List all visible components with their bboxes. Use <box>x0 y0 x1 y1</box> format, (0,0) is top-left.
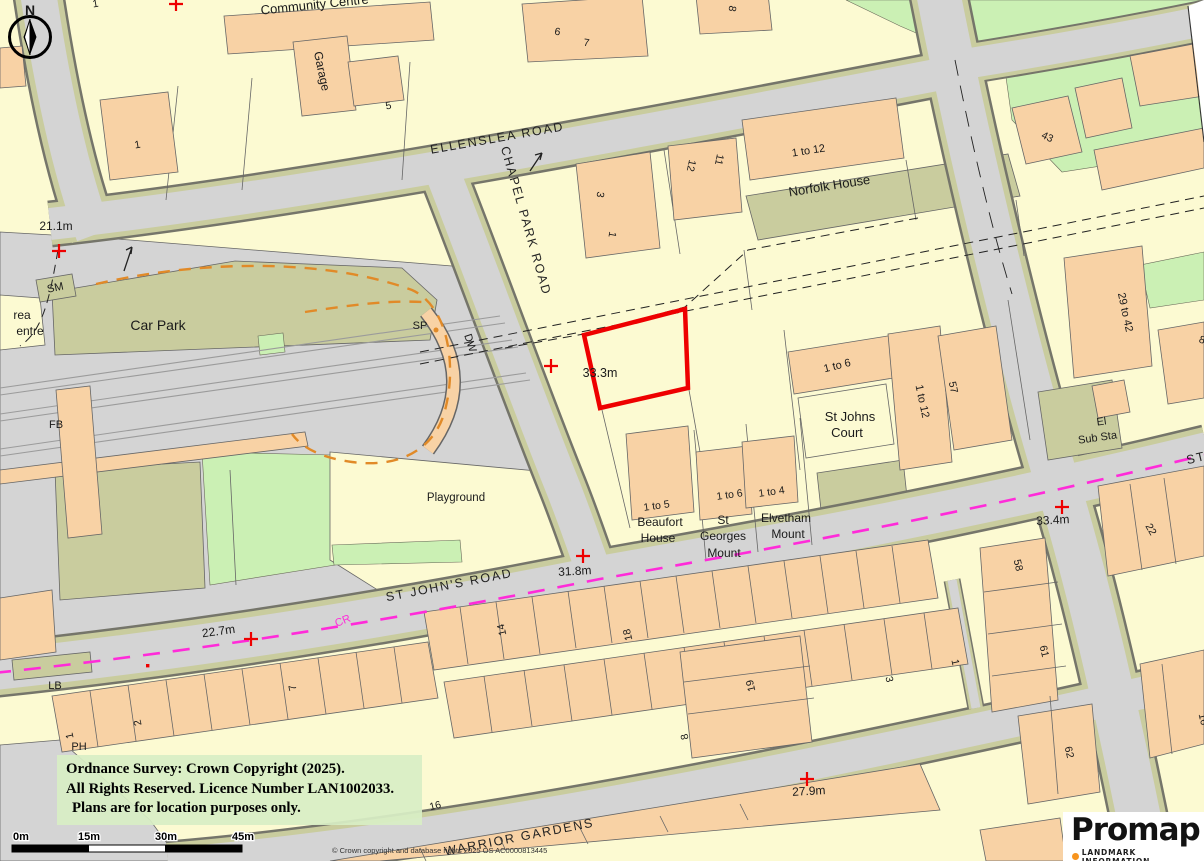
label-playground: Playground <box>427 492 485 504</box>
label-elvetham-mount: Mount <box>771 527 805 541</box>
promap-dot-icon <box>1072 853 1079 860</box>
promap-tagline: LANDMARK INFORMATION <box>1082 848 1204 861</box>
spot-height: 31.8m <box>558 563 592 579</box>
label-elvetham-mount: Elvetham <box>761 511 811 525</box>
label-beaufort-house: House <box>641 531 676 545</box>
label-beaufort-house: Beaufort <box>637 515 683 529</box>
label-st-johns-court: Court <box>831 425 863 440</box>
promap-logo: Promap LANDMARK INFORMATION <box>1063 812 1204 861</box>
scale-tick: 45m <box>232 831 254 843</box>
orange-dot-marker <box>434 328 439 333</box>
label-st-georges-mount: St <box>717 513 729 527</box>
scale-tick: 0m <box>13 831 29 843</box>
copyright-line: Ordnance Survey: Crown Copyright (2025). <box>66 760 416 780</box>
label-st-georges-mount: Mount <box>707 546 741 560</box>
scale-tick: 30m <box>155 831 177 843</box>
red-dot-marker <box>146 664 149 667</box>
map-viewport: Community Centre Garage 5 1 1 21.1m SM r… <box>0 0 1204 861</box>
block-w-edge <box>0 295 45 350</box>
map-canvas: Community Centre Garage 5 1 1 21.1m SM r… <box>0 0 1204 861</box>
abbr-ph: PH <box>71 741 86 753</box>
spot-height: 27.9m <box>792 783 826 799</box>
green-station-s <box>202 452 335 585</box>
label-car-park: Car Park <box>130 317 186 333</box>
abbr-fb: FB <box>49 419 63 431</box>
label-area-cut: rea <box>13 308 31 322</box>
compass-north-label: N <box>25 2 35 18</box>
copyright-notice: Ordnance Survey: Crown Copyright (2025).… <box>57 755 422 825</box>
promap-wordmark: Promap <box>1063 812 1204 847</box>
scale-tick: 15m <box>78 831 100 843</box>
os-fine-print: © Crown copyright and database rights 20… <box>332 846 547 855</box>
copyright-line: All Rights Reserved. Licence Number LAN1… <box>66 780 416 800</box>
label-centre-cut: entre <box>16 324 44 338</box>
abbr-sp: SP <box>413 320 428 332</box>
spot-height: 33.4m <box>1036 512 1070 528</box>
copyright-line: Plans are for location purposes only. <box>66 799 416 819</box>
label-st-georges-mount: Georges <box>700 529 746 543</box>
plot-dimension: 33.3m <box>583 366 618 380</box>
spot-height: 21.1m <box>39 219 72 233</box>
abbr-lb: LB <box>48 680 61 692</box>
green-carpark <box>258 333 285 355</box>
label-el-sub-sta: El <box>1096 415 1107 428</box>
label-st-johns-court: St Johns <box>825 409 876 424</box>
